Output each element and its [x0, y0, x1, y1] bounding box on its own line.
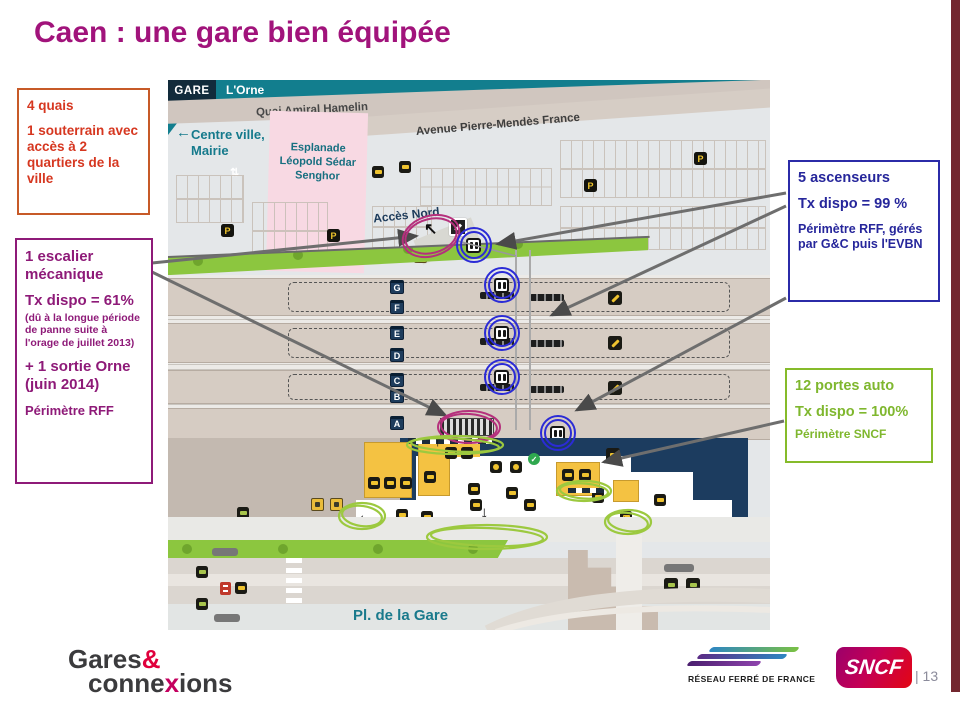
walkway [616, 535, 642, 630]
esplanade-label: Esplanade Léopold Sédar Senghor [268, 111, 368, 185]
logo-x: x [165, 668, 179, 698]
rff-stripe [708, 647, 800, 652]
ticket-icon [461, 447, 473, 459]
rff-swoosh [688, 645, 818, 671]
train-indicator [530, 340, 564, 347]
underpass-line [529, 250, 531, 430]
callout-escalier-line3: + 1 sortie Orne (juin 2014) [25, 358, 143, 393]
parking-icon: P [694, 152, 707, 165]
platform-letter-chip: F [390, 300, 404, 314]
callout-quais-line1: 4 quais [27, 98, 140, 114]
info-icon [490, 461, 502, 473]
callout-portes-line2: Tx dispo = 100% [795, 404, 923, 421]
bus-shape [214, 614, 240, 622]
side-accent-bar [951, 0, 960, 692]
sncf-logo-text: SNCF [844, 656, 905, 680]
luggage-icon [399, 161, 411, 173]
callout-quais-line2: 1 souterrain avec accès à 2 quartiers de… [27, 123, 140, 187]
parking-grid [176, 175, 244, 223]
road-median [168, 574, 770, 586]
callout-escalier-line4: Périmètre RFF [25, 403, 143, 418]
ticket-machine-icon [330, 498, 343, 511]
rff-stripe [686, 661, 762, 666]
service-icon [384, 477, 396, 489]
train-indicator [530, 294, 564, 301]
callout-portes-line1: 12 portes auto [795, 378, 923, 395]
restroom-icon [606, 448, 620, 462]
callout-ascenseurs-line1: 5 ascenseurs [798, 170, 930, 187]
service-icon [654, 494, 666, 506]
bus-icon [686, 578, 700, 592]
service-icon [524, 499, 536, 511]
bus-shape [664, 564, 694, 572]
callout-portes-note: Périmètre SNCF [795, 427, 923, 441]
station-room-yellow [364, 442, 412, 498]
gares-connexions-logo: Gares& connexions [68, 648, 233, 696]
door-strip [408, 438, 498, 444]
escalator-icon [608, 291, 622, 305]
callout-escalier-note: (dû à la longue période de panne suite à… [25, 312, 143, 349]
callout-escalier-line1: 1 escalier mécanique [25, 248, 143, 283]
crosswalk [286, 558, 302, 604]
taxi-icon [235, 582, 247, 594]
rff-logo: RÉSEAU FERRÉ DE FRANCE [688, 645, 818, 684]
platform-letter-chip: B [390, 389, 404, 403]
elevator-icon [494, 370, 509, 385]
ticket-machine-icon [311, 498, 324, 511]
elevator-icon [494, 278, 509, 293]
callout-quais: 4 quais 1 souterrain avec accès à 2 quar… [17, 88, 150, 215]
train-indicator [530, 386, 564, 393]
service-icon [400, 477, 412, 489]
parking-icon: P [584, 179, 597, 192]
callout-ascenseurs-line2: Tx dispo = 99 % [798, 196, 930, 213]
tree [182, 544, 192, 554]
parking-icon: P [221, 224, 234, 237]
platform-letter-chip: E [390, 326, 404, 340]
service-icon [562, 469, 574, 481]
tram-icon [220, 582, 231, 595]
parking-grid [420, 168, 552, 206]
slide: Caen : une gare bien équipée GARE L'Orne… [0, 0, 960, 720]
gare-routiere-label: Gare routière [656, 596, 716, 603]
bus-icon [196, 566, 208, 578]
parking-icon: P [327, 229, 340, 242]
ticket-icon [445, 447, 457, 459]
bus-icon [196, 598, 208, 610]
sidewalk [168, 517, 770, 542]
tree [193, 256, 203, 266]
callout-ascenseurs-note: Périmètre RFF, gérés par G&C puis l'EVBN [798, 222, 930, 252]
rff-label: RÉSEAU FERRÉ DE FRANCE [688, 674, 818, 684]
river-label: L'Orne [226, 83, 264, 97]
bus-shape [212, 548, 238, 556]
callout-escalier: 1 escalier mécanique Tx dispo = 61% (dû … [15, 238, 153, 484]
page-number: | 13 [915, 668, 938, 684]
elevator-icon [466, 238, 481, 253]
entrance-up-arrow-icon: ↑ [434, 434, 442, 449]
check-icon [528, 453, 540, 465]
escalator-icon [608, 381, 622, 395]
rff-stripe [696, 654, 788, 659]
escalator-icon [608, 336, 622, 350]
escalator-bank [440, 418, 494, 436]
escalator-entrance-icon [449, 218, 467, 236]
underpass-line [515, 250, 517, 430]
service-icon [579, 469, 591, 481]
gare-badge: GARE [168, 80, 216, 101]
platform-letter-chip: D [390, 348, 404, 362]
up-left-arrow-icon: ↖ [424, 222, 437, 238]
bus-icon [664, 578, 678, 592]
platform-letter-chip: A [390, 416, 404, 430]
place-label: Pl. de la Gare [353, 607, 448, 624]
taxi-icon [372, 166, 384, 178]
callout-escalier-line2: Tx dispo = 61% [25, 292, 143, 310]
train-indicator [480, 384, 514, 391]
platform-letter-chip: G [390, 280, 404, 294]
tree [468, 544, 478, 554]
gares-connexions-line2: connexions [88, 672, 233, 696]
left-arrow-icon: ← [176, 125, 191, 140]
callout-portes: 12 portes auto Tx dispo = 100% Périmètre… [785, 368, 933, 463]
platform-letter-chip: C [390, 373, 404, 387]
callout-ascenseurs: 5 ascenseurs Tx dispo = 99 % Périmètre R… [788, 160, 940, 302]
plaza [168, 604, 770, 630]
service-icon [424, 471, 436, 483]
phone-icon [468, 483, 480, 495]
info-icon [510, 461, 522, 473]
station-map: GARE L'Orne Quai Amiral Hamelin Avenue P… [168, 80, 770, 630]
train-indicator [480, 292, 514, 299]
page-title: Caen : une gare bien équipée [34, 16, 451, 50]
phone-icon [506, 487, 518, 499]
station-room-yellow [613, 480, 639, 502]
elevator-icon [494, 326, 509, 341]
tree [373, 544, 383, 554]
tree [278, 544, 288, 554]
door-strip [568, 488, 604, 493]
sncf-logo: SNCF [836, 647, 912, 688]
service-icon [368, 477, 380, 489]
